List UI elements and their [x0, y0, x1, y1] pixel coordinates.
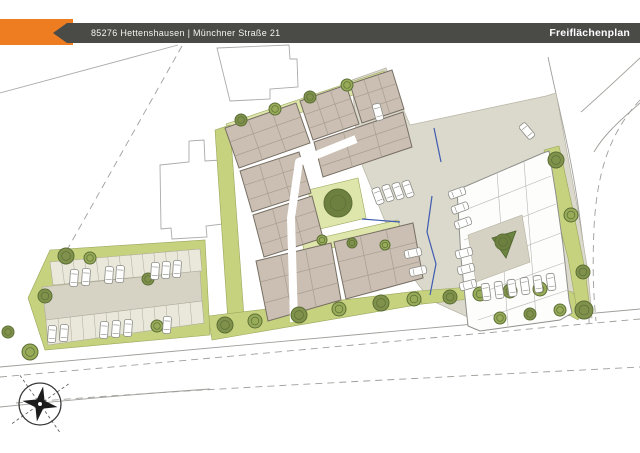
car-symbol [81, 268, 90, 286]
tree-symbol [341, 79, 353, 91]
road-dashed-line [16, 367, 640, 403]
boundary-line [0, 45, 178, 93]
car-symbol [123, 319, 132, 337]
tree-symbol [495, 234, 511, 250]
car-symbol [115, 265, 124, 283]
project-address: 85276 Hettenshausen | Münchner Straße 21 [53, 28, 280, 38]
tree-symbol [304, 91, 316, 103]
car-symbol [47, 325, 56, 343]
tree-symbol [443, 290, 457, 304]
car-symbol [162, 316, 171, 334]
road-dashed-line [593, 100, 640, 321]
car-symbol [104, 266, 113, 284]
tree-symbol [22, 344, 38, 360]
tree-symbol [494, 312, 506, 324]
tree-symbol [217, 317, 233, 333]
tree-symbol [380, 240, 390, 250]
neighbor-building-outline [217, 45, 298, 101]
tree-symbol [554, 304, 566, 316]
car-symbol [59, 324, 68, 342]
tree-symbol [248, 314, 262, 328]
site-plan [0, 0, 640, 453]
road-edge-line [594, 103, 640, 152]
tree-symbol [347, 238, 357, 248]
tree-symbol [548, 152, 564, 168]
tree-symbol [58, 248, 74, 264]
tree-symbol [235, 114, 247, 126]
tree-symbol [269, 103, 281, 115]
tree-symbol [373, 295, 389, 311]
car-symbol [172, 260, 181, 278]
title-bar: 85276 Hettenshausen | Münchner Straße 21… [53, 23, 640, 43]
neighbor-building-outline [160, 140, 223, 239]
tree-symbol [38, 289, 52, 303]
car-symbol [111, 320, 120, 338]
plan-sheet: 85276 Hettenshausen | Münchner Straße 21… [0, 0, 640, 453]
tree-symbol [151, 320, 163, 332]
sheet-title: Freiflächenplan [549, 27, 640, 39]
tree-symbol [524, 308, 536, 320]
tree-symbol [564, 208, 578, 222]
tree-symbol [575, 301, 593, 319]
tree-symbol [407, 292, 421, 306]
car-symbol [150, 262, 159, 280]
road-edge-line [581, 58, 640, 112]
tree-symbol [2, 326, 14, 338]
car-symbol [99, 321, 108, 339]
tree-symbol [317, 235, 327, 245]
compass-center [38, 402, 43, 407]
car-symbol [161, 261, 170, 279]
tree-symbol [576, 265, 590, 279]
tree-symbol [332, 302, 346, 316]
tree-symbol [84, 252, 96, 264]
tree-symbol [324, 189, 352, 217]
car-symbol [69, 269, 78, 287]
tree-symbol [291, 307, 307, 323]
